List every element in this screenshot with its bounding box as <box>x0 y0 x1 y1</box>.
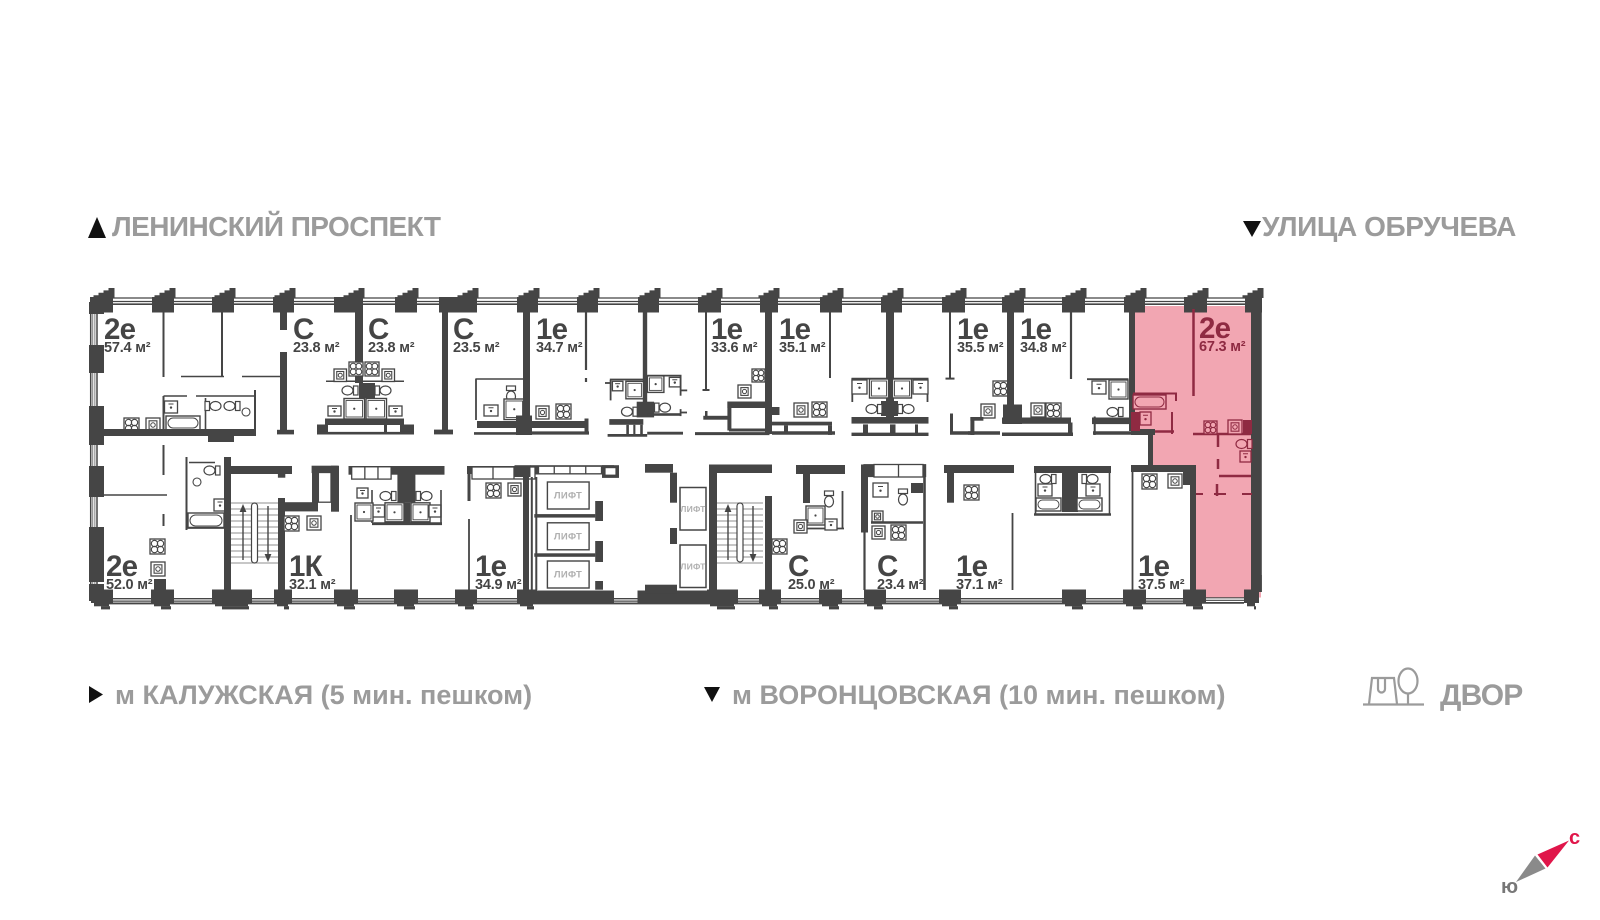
svg-text:23.4 м²: 23.4 м² <box>877 577 924 593</box>
svg-text:67.3 м²: 67.3 м² <box>1199 339 1246 355</box>
svg-text:ЛИФТ: ЛИФТ <box>680 504 706 514</box>
svg-text:34.7 м²: 34.7 м² <box>536 340 583 356</box>
svg-text:37.5 м²: 37.5 м² <box>1138 577 1185 593</box>
svg-text:33.6 м²: 33.6 м² <box>711 340 758 356</box>
svg-text:ю: ю <box>1501 876 1518 898</box>
svg-text:ЛИФТ: ЛИФТ <box>554 570 582 581</box>
svg-text:32.1 м²: 32.1 м² <box>289 577 336 593</box>
svg-text:ЛИФТ: ЛИФТ <box>554 532 582 543</box>
svg-text:ЛИФТ: ЛИФТ <box>680 561 706 571</box>
svg-text:УЛИЦА ОБРУЧЕВА: УЛИЦА ОБРУЧЕВА <box>1262 211 1516 242</box>
svg-text:35.1 м²: 35.1 м² <box>779 340 826 356</box>
svg-text:23.5 м²: 23.5 м² <box>453 340 500 356</box>
svg-text:23.8 м²: 23.8 м² <box>293 340 340 356</box>
svg-text:34.8 м²: 34.8 м² <box>1020 340 1067 356</box>
svg-text:35.5 м²: 35.5 м² <box>957 340 1004 356</box>
svg-text:м КАЛУЖСКАЯ (5 мин. пешком): м КАЛУЖСКАЯ (5 мин. пешком) <box>115 680 532 710</box>
svg-text:ЛЕНИНСКИЙ ПРОСПЕКТ: ЛЕНИНСКИЙ ПРОСПЕКТ <box>112 210 441 242</box>
svg-text:ДВОР: ДВОР <box>1440 679 1522 712</box>
svg-text:57.4 м²: 57.4 м² <box>104 340 151 356</box>
svg-text:37.1 м²: 37.1 м² <box>956 577 1003 593</box>
svg-text:м ВОРОНЦОВСКАЯ (10 мин. пешко: м ВОРОНЦОВСКАЯ (10 мин. пешком) <box>732 680 1226 710</box>
svg-text:34.9 м²: 34.9 м² <box>475 577 522 593</box>
svg-text:25.0 м²: 25.0 м² <box>788 577 835 593</box>
svg-text:с: с <box>1569 827 1580 849</box>
svg-text:23.8 м²: 23.8 м² <box>368 340 415 356</box>
svg-text:52.0 м²: 52.0 м² <box>106 577 153 593</box>
svg-text:ЛИФТ: ЛИФТ <box>554 491 582 502</box>
